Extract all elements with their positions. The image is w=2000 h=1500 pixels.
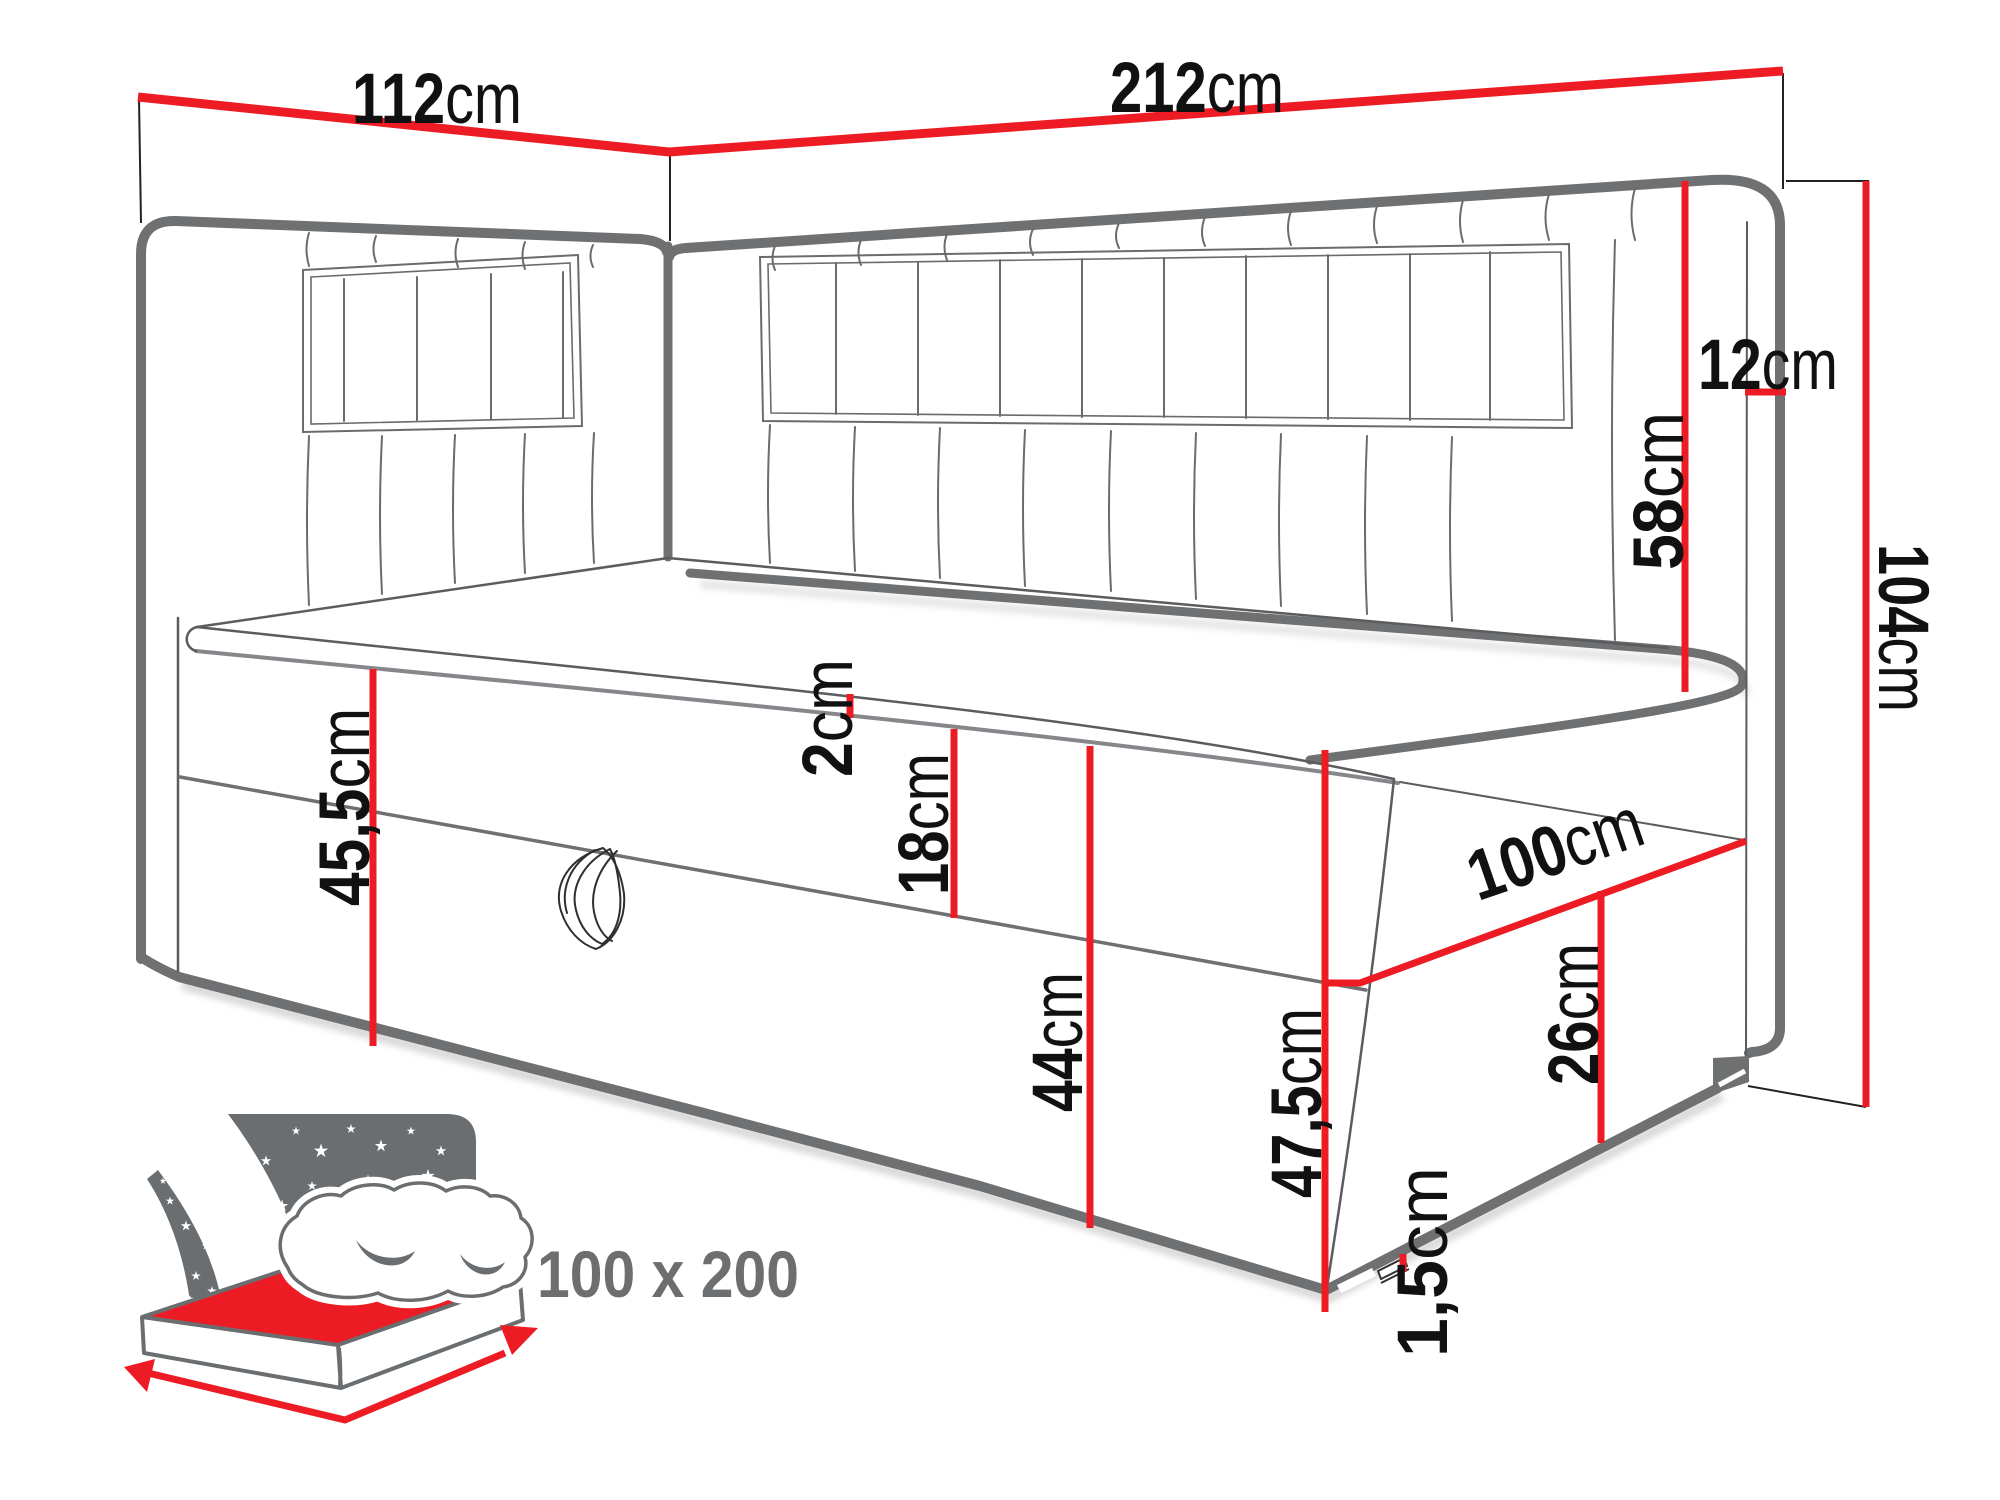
svg-text:44cm: 44cm <box>1019 972 1098 1112</box>
svg-text:58cm: 58cm <box>1620 412 1699 570</box>
svg-text:26cm: 26cm <box>1535 943 1614 1085</box>
svg-text:112cm: 112cm <box>352 60 522 139</box>
svg-text:1,5cm: 1,5cm <box>1384 1167 1463 1357</box>
svg-text:104cm: 104cm <box>1863 544 1942 712</box>
svg-text:47,5cm: 47,5cm <box>1258 1008 1337 1198</box>
svg-text:18cm: 18cm <box>885 753 964 895</box>
svg-text:2cm: 2cm <box>789 659 868 777</box>
svg-text:12cm: 12cm <box>1698 326 1838 405</box>
svg-text:212cm: 212cm <box>1110 49 1284 128</box>
svg-text:100 x 200: 100 x 200 <box>537 1237 799 1311</box>
svg-text:45,5cm: 45,5cm <box>306 708 385 906</box>
